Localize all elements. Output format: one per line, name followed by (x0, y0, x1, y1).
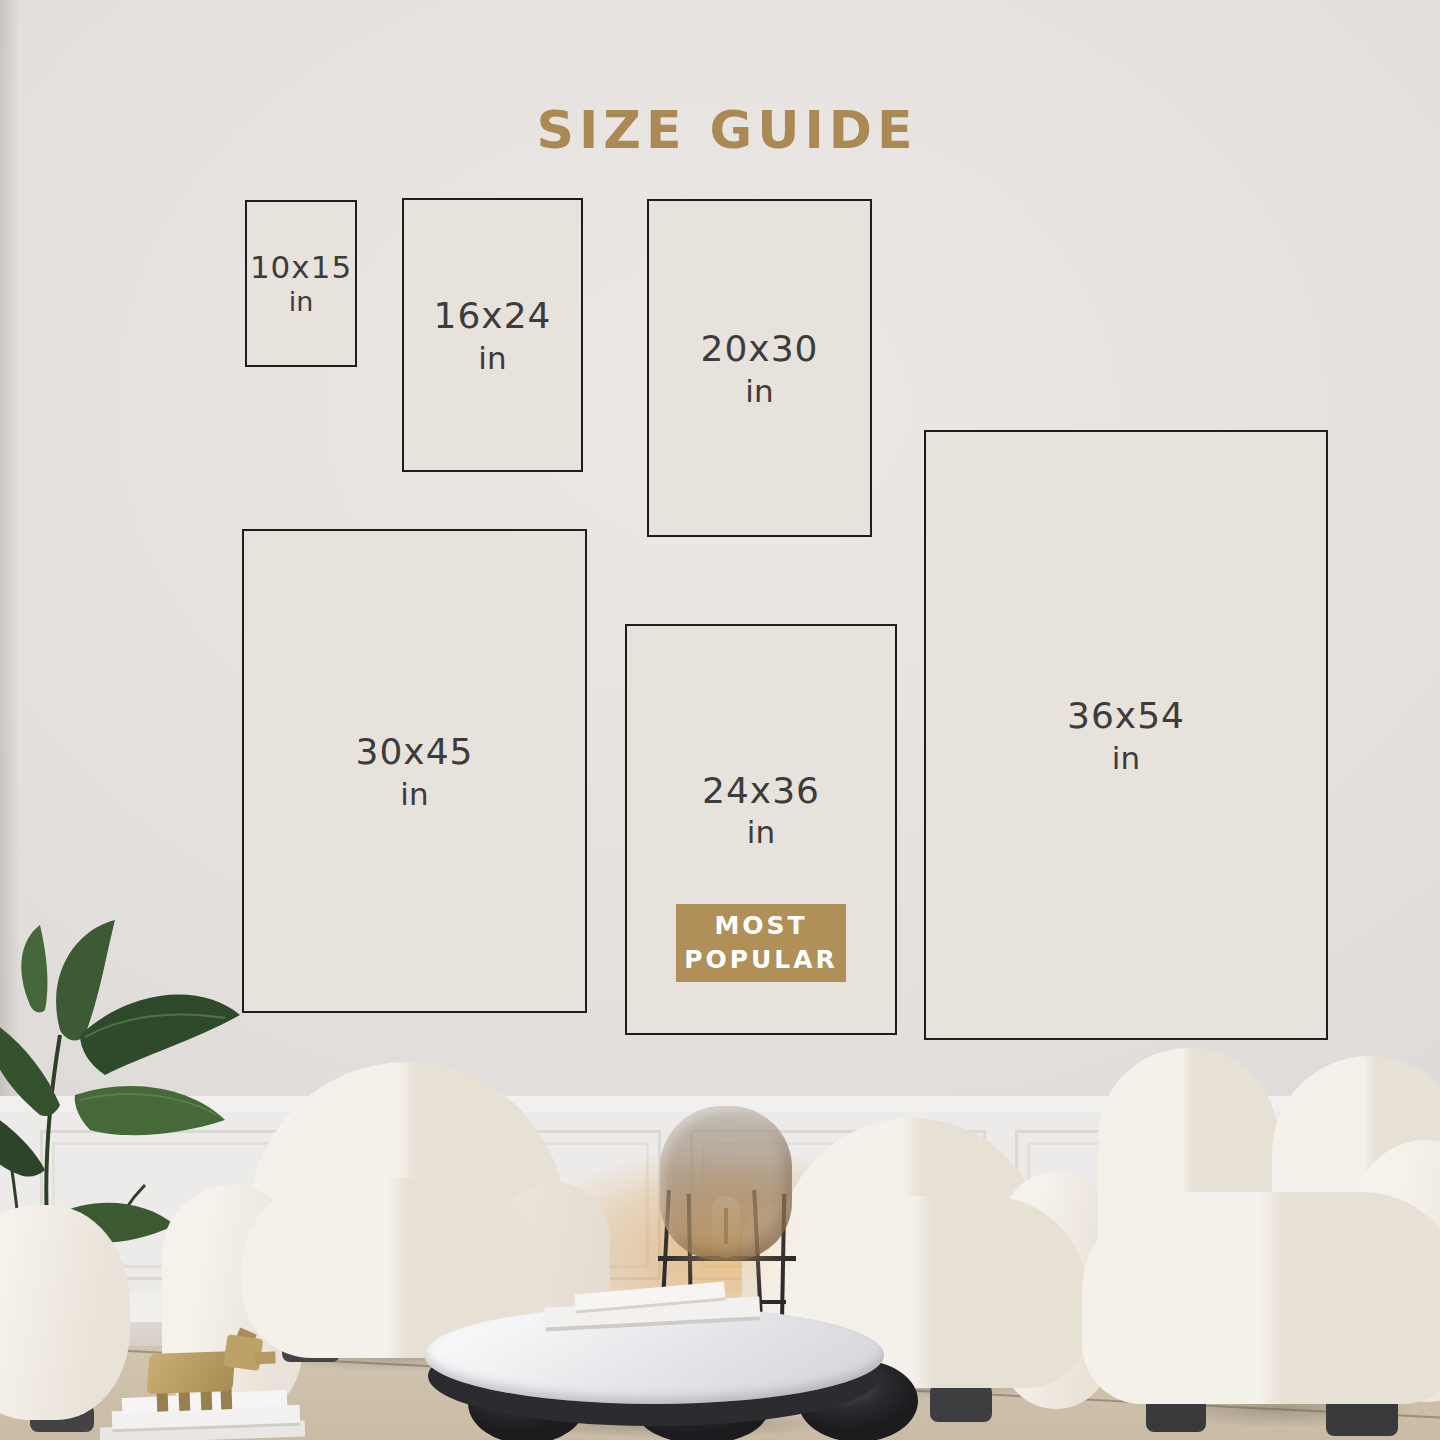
size-label-group: 24x36 in (702, 770, 820, 849)
page-title: SIZE GUIDE (0, 100, 1440, 160)
size-dims-label: 20x30 (701, 328, 819, 369)
size-box-16x24: 16x24 in (402, 198, 583, 472)
size-dims-label: 30x45 (356, 731, 474, 772)
size-label-group: 30x45 in (356, 731, 474, 810)
size-unit-label: in (745, 374, 773, 408)
dog-sculpture (139, 1334, 272, 1414)
size-dims-label: 24x36 (702, 770, 820, 811)
dog-leg (179, 1391, 191, 1411)
size-unit-label: in (478, 341, 506, 375)
size-box-20x30: 20x30 in (647, 199, 872, 537)
size-dims-label: 36x54 (1067, 695, 1185, 736)
size-unit-label: in (747, 815, 775, 849)
armchair-leg (930, 1384, 992, 1422)
most-popular-badge: MOST POPULAR (676, 904, 846, 982)
badge-line-2: POPULAR (684, 943, 838, 977)
size-unit-label: in (400, 777, 428, 811)
size-dims-label: 16x24 (434, 295, 552, 336)
size-label-group: 36x54 in (1067, 695, 1185, 774)
size-unit-label: in (1112, 741, 1140, 775)
badge-line-1: MOST (714, 909, 807, 943)
size-label-group: 16x24 in (434, 295, 552, 374)
size-unit-label: in (289, 287, 314, 317)
size-label-group: 20x30 in (701, 328, 819, 407)
lamp-glass-shade (660, 1106, 792, 1260)
sofa-seat (1082, 1192, 1440, 1404)
dog-snout (255, 1352, 275, 1365)
size-box-36x54: 36x54 in (924, 430, 1328, 1040)
size-box-30x45: 30x45 in (242, 529, 587, 1013)
size-label-group: 10x15 in (250, 250, 352, 317)
size-box-10x15: 10x15 in (245, 200, 357, 367)
dog-body (147, 1351, 236, 1394)
size-box-24x36: 24x36 in MOST POPULAR (625, 624, 897, 1035)
size-dims-label: 10x15 (250, 250, 352, 286)
size-guide-image: SIZE GUIDE 10x15 in 16x24 in 20x30 in 30… (0, 0, 1440, 1440)
dog-leg (221, 1389, 233, 1409)
